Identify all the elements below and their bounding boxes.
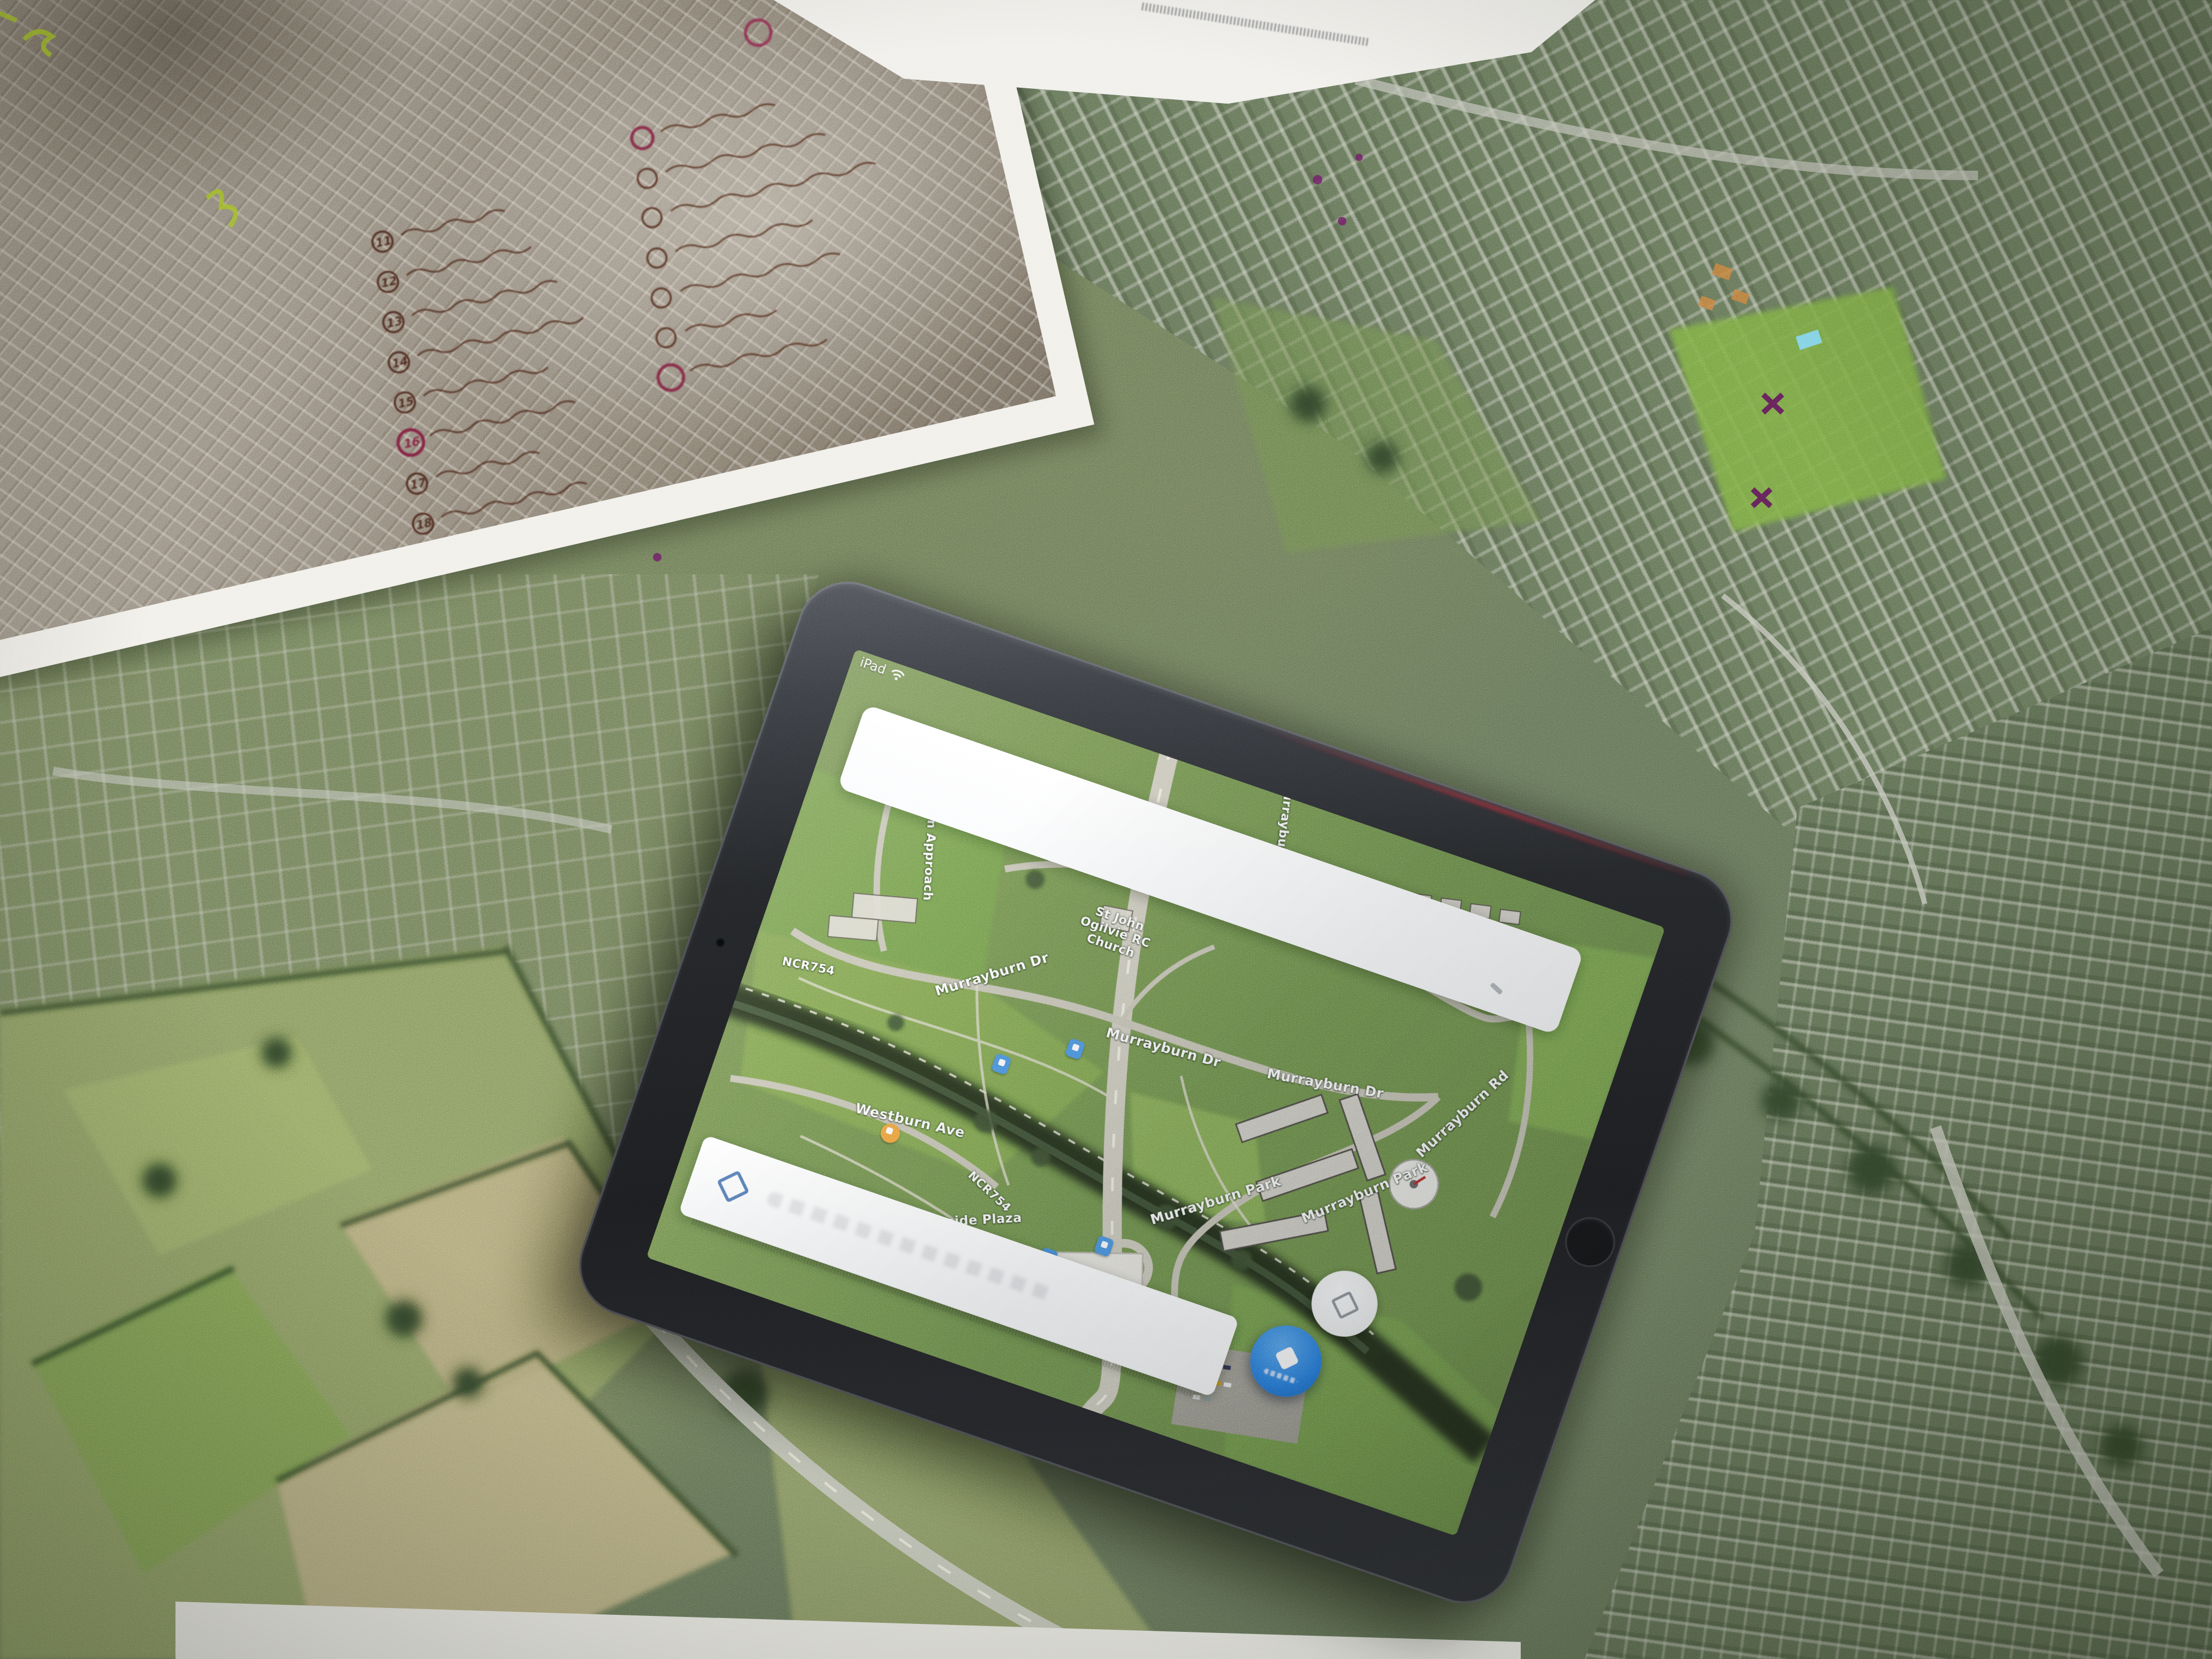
list-number: 16 xyxy=(401,434,421,451)
directions-icon xyxy=(1275,1346,1299,1370)
location-glyph-icon xyxy=(1331,1291,1359,1319)
green-highlighter-marks xyxy=(0,0,238,269)
directions-diamond-icon xyxy=(717,1170,750,1203)
list-number: 11 xyxy=(373,233,392,250)
desk-scene: 11 12 13 14 15 16 17 18 xyxy=(0,0,2212,1659)
home-button[interactable] xyxy=(1559,1210,1622,1273)
front-camera xyxy=(714,936,726,949)
search-cursor-mark xyxy=(1490,982,1503,995)
fab-caption xyxy=(1263,1368,1298,1385)
